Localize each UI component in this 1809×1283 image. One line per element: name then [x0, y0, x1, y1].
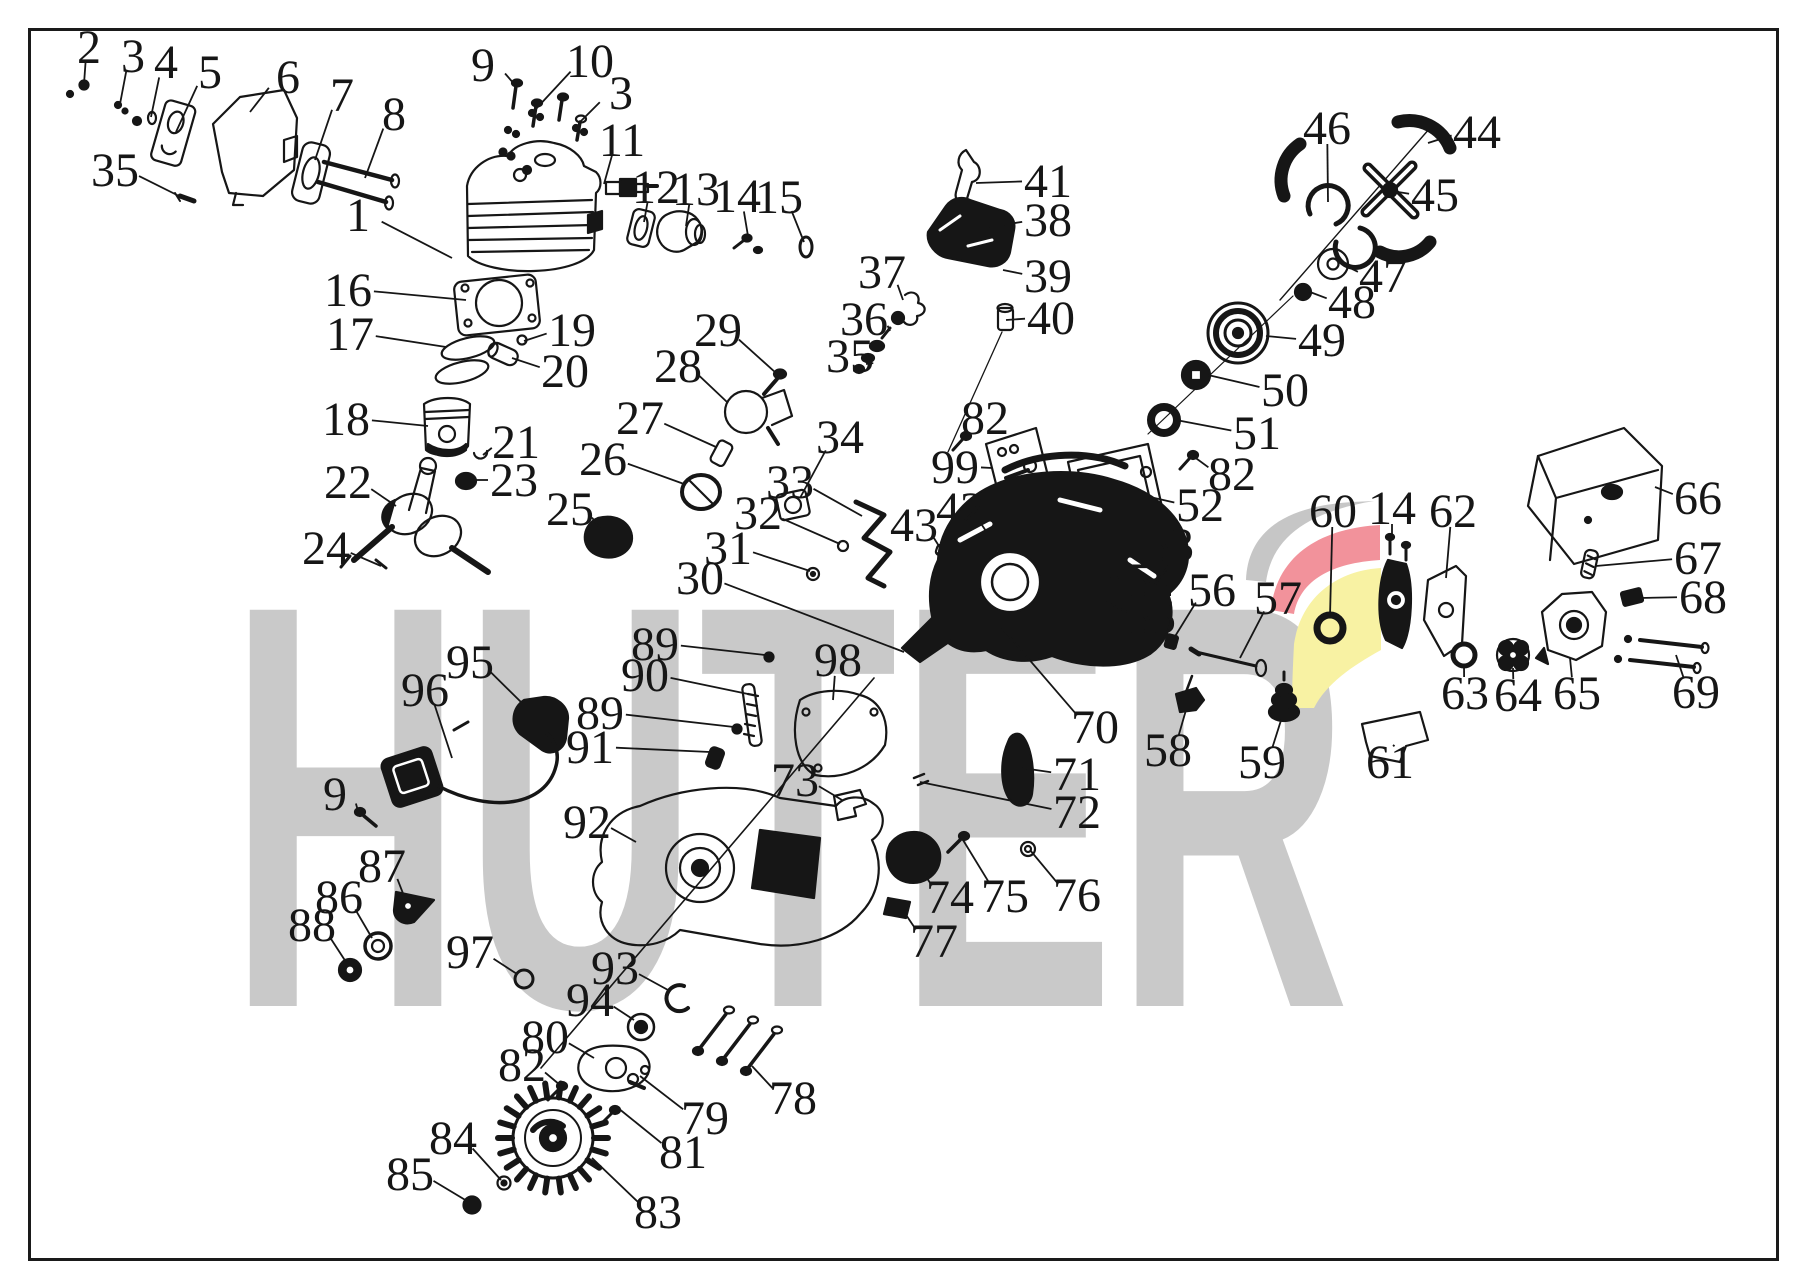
part-label-6: 6 — [276, 51, 300, 104]
flywheel-tooth — [507, 1108, 519, 1116]
part-label-61: 61 — [1366, 736, 1414, 789]
flywheel-tooth — [545, 1179, 547, 1193]
flywheel-tooth — [530, 1175, 536, 1188]
part-label-90: 90 — [621, 649, 669, 702]
part-label-34: 34 — [816, 411, 864, 464]
part-label-27: 27 — [616, 392, 664, 445]
leader-line-22 — [371, 489, 396, 506]
purge-pump-part — [725, 390, 792, 444]
needle-bearing-part — [456, 473, 476, 489]
oiler-pad-80-part — [578, 1046, 649, 1092]
part-label-17: 17 — [326, 308, 374, 361]
leader-line-51 — [1176, 420, 1231, 430]
part-label-94: 94 — [566, 974, 614, 1027]
part-label-42: 42 — [936, 483, 984, 536]
leader-line-32 — [782, 519, 840, 544]
plug-boot-95-part — [454, 697, 568, 752]
part-label-96: 96 — [401, 664, 449, 717]
part-label-91: 91 — [566, 721, 614, 774]
leader-line-94 — [614, 1007, 634, 1020]
spider-coupling-64-part — [1497, 639, 1529, 671]
leader-line-93 — [639, 974, 668, 990]
part-label-45: 45 — [1411, 169, 1459, 222]
leader-line-92 — [611, 828, 636, 842]
part-label-82: 82 — [961, 392, 1009, 445]
part-label-1: 1 — [346, 189, 370, 242]
leader-line-49 — [1266, 336, 1296, 339]
fuel-filter-67-part — [1580, 549, 1599, 579]
flywheel-tooth — [507, 1160, 519, 1168]
ring-97-part — [515, 970, 533, 988]
flywheel-tooth — [559, 1179, 561, 1193]
part-label-58: 58 — [1144, 724, 1192, 777]
leader-line-28 — [699, 375, 727, 402]
part-label-24: 24 — [302, 522, 350, 575]
grommet-part — [682, 475, 720, 509]
muffler-plate-part — [150, 99, 197, 167]
flywheel-tooth — [517, 1096, 526, 1107]
part-label-44: 44 — [1453, 106, 1501, 159]
muffler-cover-part — [213, 90, 297, 205]
flywheel-tooth — [570, 1175, 576, 1188]
flywheel-tooth — [592, 1150, 605, 1154]
part-label-70: 70 — [1071, 701, 1119, 754]
leader-line-40 — [1006, 319, 1025, 320]
part-label-10: 10 — [566, 35, 614, 88]
block-68-part — [1621, 588, 1644, 606]
part-label-82: 82 — [498, 1039, 546, 1092]
part-label-9: 9 — [323, 768, 347, 821]
spring-rod-90-part — [705, 653, 773, 770]
part-label-55: 55 — [1128, 591, 1176, 644]
flywheel-tooth — [500, 1123, 513, 1127]
oil-seal-60-part — [1317, 615, 1343, 641]
nut-88-part — [339, 959, 361, 981]
part-label-57: 57 — [1254, 572, 1302, 625]
part-label-95: 95 — [446, 636, 494, 689]
part-label-83: 83 — [634, 1186, 682, 1239]
flywheel-tooth — [580, 1169, 589, 1180]
part-label-38: 38 — [1024, 194, 1072, 247]
leader-line-50 — [1208, 375, 1259, 387]
part-label-77: 77 — [910, 915, 958, 968]
pump-bracket-58-part — [1176, 676, 1204, 712]
bolts-78-part — [693, 1007, 782, 1076]
leader-line-48 — [1310, 292, 1327, 298]
part-label-49: 49 — [1298, 314, 1346, 367]
part-label-98: 98 — [814, 634, 862, 687]
part-label-2: 2 — [77, 21, 101, 74]
leader-line-82 — [1193, 456, 1208, 467]
screw-81-part — [601, 1106, 620, 1124]
leader-line-19 — [524, 334, 547, 341]
leader-line-39 — [1003, 270, 1022, 274]
flywheel-tooth — [517, 1169, 526, 1180]
part-label-23: 23 — [490, 454, 538, 507]
leader-line-16 — [374, 291, 466, 300]
part-label-51: 51 — [1233, 407, 1281, 460]
leader-line-8 — [365, 129, 383, 178]
leader-line-97 — [494, 959, 517, 974]
bushing-part — [709, 439, 734, 467]
part-label-65: 65 — [1553, 667, 1601, 720]
washer-86-part — [365, 933, 391, 959]
pump-body-14-part — [1379, 534, 1411, 648]
bearing-48-part — [1295, 284, 1311, 300]
leader-line-1 — [382, 222, 452, 258]
part-label-46: 46 — [1303, 102, 1351, 155]
leader-line-29 — [739, 340, 776, 373]
oring-15-part — [800, 237, 812, 257]
leader-line-31 — [753, 552, 810, 571]
leader-line-85 — [433, 1181, 467, 1201]
leader-line-68 — [1640, 597, 1677, 598]
trigger-bracket-part — [956, 150, 980, 203]
screw-35-part — [175, 193, 194, 201]
part-label-76: 76 — [1053, 869, 1101, 922]
leader-line-89 — [681, 646, 765, 655]
leader-line-26 — [628, 464, 684, 484]
part-label-56: 56 — [1188, 564, 1236, 617]
part-label-35: 35 — [91, 144, 139, 197]
part-label-66: 66 — [1674, 472, 1722, 525]
part-label-4: 4 — [154, 36, 178, 89]
part-label-75: 75 — [981, 870, 1029, 923]
part-label-40: 40 — [1027, 292, 1075, 345]
part-label-15: 15 — [755, 171, 803, 224]
exploded-parts-diagram: HUTER — [0, 0, 1809, 1283]
part-label-20: 20 — [541, 345, 589, 398]
leader-line-73 — [819, 786, 842, 800]
leader-line-18 — [372, 420, 428, 426]
leader-line-89 — [626, 715, 734, 727]
flywheel-83-part — [498, 1084, 608, 1193]
leader-line-27 — [664, 424, 716, 447]
part-label-97: 97 — [446, 926, 494, 979]
chain-tensioner-part — [807, 502, 890, 586]
leader-line-90 — [671, 678, 748, 694]
part-label-33: 33 — [766, 456, 814, 509]
part-label-14: 14 — [1368, 482, 1416, 535]
screw-82b-part — [1180, 451, 1198, 469]
part-label-62: 62 — [1429, 485, 1477, 538]
flywheel-tooth — [570, 1088, 576, 1101]
part-label-29: 29 — [694, 304, 742, 357]
part-label-78: 78 — [769, 1072, 817, 1125]
part-label-73: 73 — [771, 754, 819, 807]
ball-85-part — [464, 1197, 481, 1214]
leader-line-95 — [490, 672, 522, 703]
cylinder-screws-cluster — [500, 80, 588, 175]
part-label-88: 88 — [288, 899, 336, 952]
part-label-3: 3 — [609, 67, 633, 120]
cylinder-part — [467, 141, 602, 271]
pump-shaft-57-part — [1191, 649, 1266, 676]
cylinder-gasket-part — [453, 274, 540, 336]
piston-part — [424, 398, 470, 456]
part-label-64: 64 — [1494, 669, 1542, 722]
part-label-69: 69 — [1672, 666, 1720, 719]
leader-lines — [84, 63, 1684, 1202]
leader-line-60 — [1330, 527, 1332, 616]
part-label-92: 92 — [563, 796, 611, 849]
flywheel-tooth — [500, 1150, 513, 1154]
fasteners-2-3-4 — [67, 81, 156, 126]
part-label-35: 35 — [826, 330, 874, 383]
leader-line-67 — [1596, 559, 1672, 566]
leader-line-6 — [250, 88, 269, 112]
piston-rings-part — [433, 332, 496, 388]
part-label-68: 68 — [1679, 571, 1727, 624]
washer-50-part — [1182, 361, 1210, 389]
fuel-tank-part — [1528, 428, 1662, 564]
oil-pump-59-part — [1269, 672, 1299, 721]
leader-line-99 — [981, 467, 992, 468]
part-label-22: 22 — [324, 456, 372, 509]
chain-catcher-87-part — [394, 892, 434, 923]
bracket-73-part — [834, 790, 866, 820]
diagram-art-layer: 2345678359103111213141511617192018212322… — [0, 0, 1809, 1283]
manifold-screws-part — [734, 235, 762, 254]
part-label-11: 11 — [599, 114, 645, 167]
part-label-5: 5 — [198, 46, 222, 99]
part-label-60: 60 — [1309, 485, 1357, 538]
part-label-9: 9 — [471, 39, 495, 92]
part-label-14: 14 — [713, 170, 761, 223]
bolt-75-part — [948, 832, 969, 852]
part-label-63: 63 — [1441, 667, 1489, 720]
leader-line-3 — [580, 102, 600, 122]
flywheel-tooth — [559, 1084, 561, 1098]
leader-line-81 — [618, 1108, 661, 1143]
leader-line-91 — [616, 748, 710, 752]
part-label-81: 81 — [659, 1126, 707, 1179]
worm-housing-65-part — [1536, 592, 1606, 664]
part-label-25: 25 — [546, 483, 594, 536]
leader-line-66 — [1655, 487, 1673, 494]
part-label-7: 7 — [330, 69, 354, 122]
part-label-18: 18 — [322, 393, 370, 446]
flywheel-tooth — [580, 1096, 589, 1107]
part-label-8: 8 — [382, 88, 406, 141]
part-label-3: 3 — [121, 30, 145, 83]
ignition-coil-96-part — [380, 732, 558, 809]
intake-manifold-part — [657, 211, 705, 251]
wrist-pin-part — [486, 336, 526, 368]
leader-line-83 — [592, 1158, 638, 1202]
part-label-37: 37 — [858, 246, 906, 299]
leader-line-41 — [976, 181, 1022, 183]
leader-line-79 — [640, 1076, 683, 1109]
flywheel-tooth — [587, 1108, 599, 1116]
part-label-43: 43 — [890, 499, 938, 552]
leader-line-17 — [376, 336, 446, 347]
part-label-59: 59 — [1238, 736, 1286, 789]
clip-93-part — [666, 985, 688, 1011]
throttle-assembly-part — [928, 198, 1015, 266]
bearing-51-part — [1151, 407, 1177, 433]
part-number-labels: 2345678359103111213141511617192018212322… — [77, 21, 1727, 1239]
part-label-72: 72 — [1053, 786, 1101, 839]
ring-63-part — [1453, 644, 1475, 666]
part-label-84: 84 — [429, 1112, 477, 1165]
leader-line-35 — [139, 176, 183, 198]
part-label-87: 87 — [358, 840, 406, 893]
part-label-85: 85 — [386, 1148, 434, 1201]
